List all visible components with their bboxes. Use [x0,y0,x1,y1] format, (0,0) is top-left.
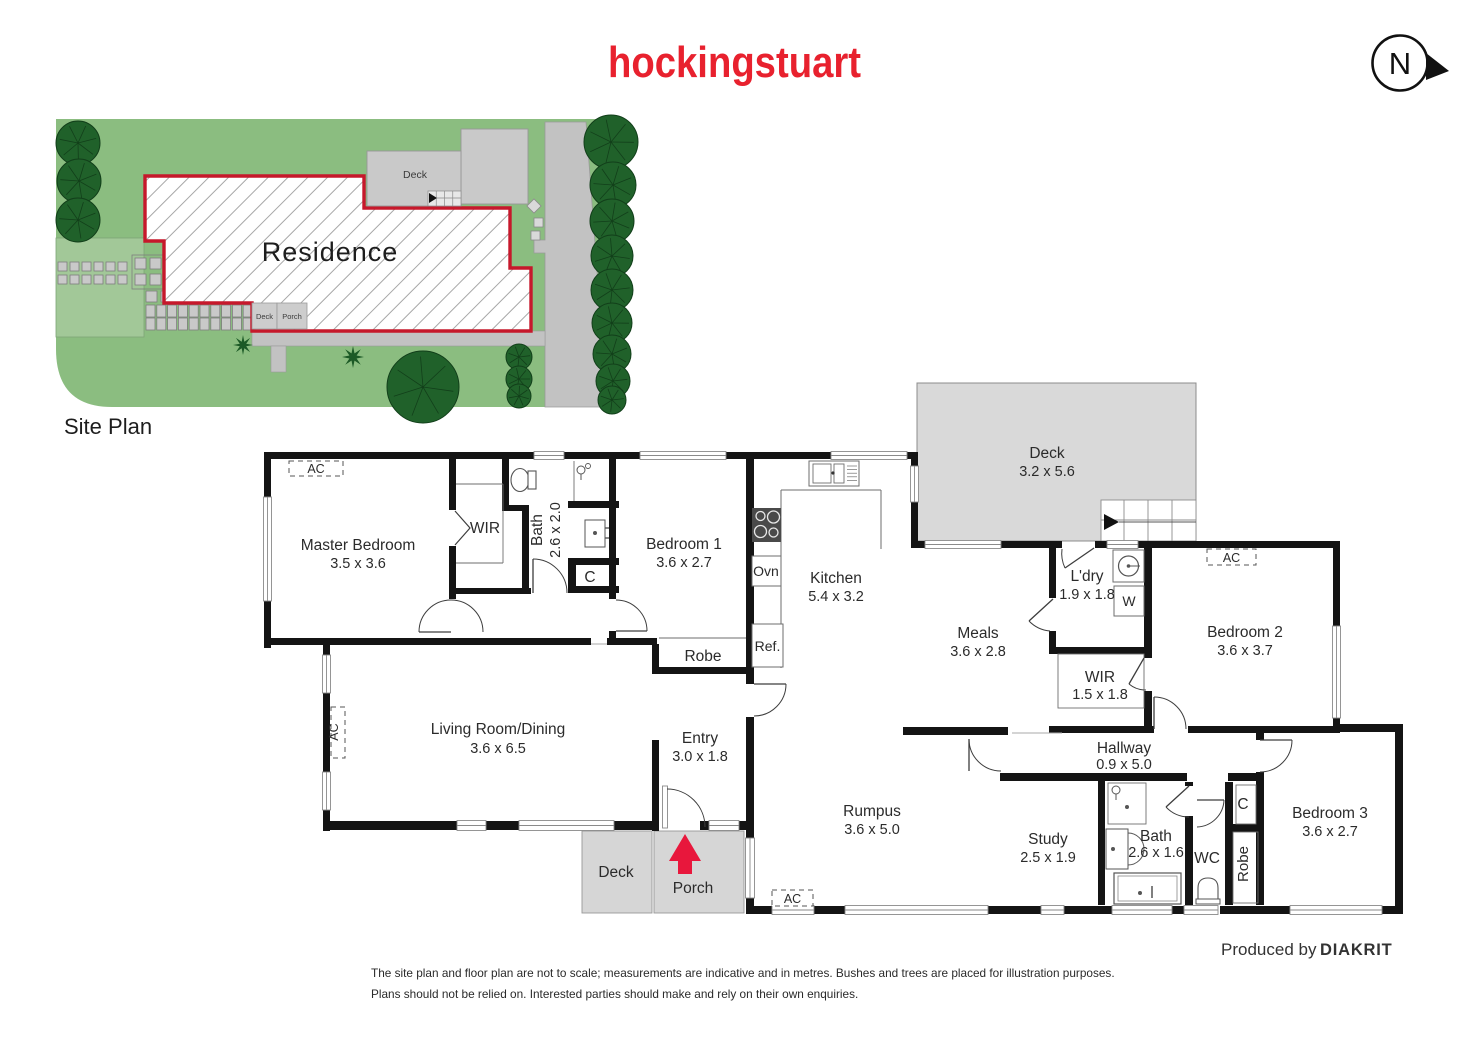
svg-text:Deck: Deck [1029,445,1065,462]
svg-text:3.6 x 5.0: 3.6 x 5.0 [844,822,900,838]
svg-text:Entry: Entry [682,730,718,747]
svg-text:hockingstuart: hockingstuart [608,38,861,87]
svg-text:C: C [1237,796,1248,813]
svg-text:Site Plan: Site Plan [64,414,152,439]
svg-text:Deck: Deck [403,169,428,181]
svg-text:Ovn: Ovn [753,563,779,579]
svg-text:5.4 x 3.2: 5.4 x 3.2 [808,589,864,605]
svg-text:Meals: Meals [957,625,999,642]
svg-text:2.6 x 2.0: 2.6 x 2.0 [548,502,564,558]
svg-text:Master Bedroom: Master Bedroom [301,537,416,554]
svg-text:2.6 x 1.6: 2.6 x 1.6 [1128,845,1184,861]
svg-text:Residence: Residence [262,237,399,267]
svg-text:AC: AC [784,892,801,906]
svg-text:3.6 x 3.7: 3.6 x 3.7 [1217,643,1273,659]
svg-text:AC: AC [307,462,324,476]
svg-text:Porch: Porch [282,312,302,321]
svg-text:Living Room/Dining: Living Room/Dining [431,721,565,738]
svg-text:W: W [1122,593,1136,609]
svg-text:Bath: Bath [1140,828,1172,845]
svg-text:3.5 x 3.6: 3.5 x 3.6 [330,556,386,572]
svg-text:Produced by: Produced by [1221,940,1317,959]
svg-text:3.0 x 1.8: 3.0 x 1.8 [672,749,728,765]
svg-text:Robe: Robe [1235,846,1252,882]
svg-text:0.9 x 5.0: 0.9 x 5.0 [1096,757,1152,773]
svg-text:The site plan and floor plan a: The site plan and floor plan are not to … [371,966,1115,980]
svg-text:Porch: Porch [673,880,714,897]
svg-text:3.6 x 2.7: 3.6 x 2.7 [656,555,712,571]
svg-text:WIR: WIR [1085,669,1115,686]
svg-text:DIAKRIT: DIAKRIT [1320,941,1393,959]
svg-text:Bedroom 3: Bedroom 3 [1292,805,1368,822]
svg-text:WIR: WIR [470,520,500,537]
svg-text:WC: WC [1194,850,1220,867]
svg-text:Bedroom 1: Bedroom 1 [646,536,722,553]
svg-text:3.6 x 2.8: 3.6 x 2.8 [950,644,1006,660]
svg-text:AC: AC [327,723,341,740]
svg-text:Robe: Robe [684,648,721,665]
svg-text:Bedroom 2: Bedroom 2 [1207,624,1283,641]
svg-text:1.9 x 1.8: 1.9 x 1.8 [1059,587,1115,603]
svg-text:Bath: Bath [529,514,546,546]
svg-text:Deck: Deck [256,312,273,321]
svg-text:C: C [584,569,595,586]
svg-text:Kitchen: Kitchen [810,570,862,587]
svg-text:2.5 x 1.9: 2.5 x 1.9 [1020,850,1076,866]
svg-text:N: N [1389,46,1411,81]
svg-text:1.5 x 1.8: 1.5 x 1.8 [1072,687,1128,703]
svg-text:Study: Study [1028,831,1068,848]
svg-text:Hallway: Hallway [1097,740,1152,757]
svg-text:Rumpus: Rumpus [843,803,901,820]
svg-text:Ref.: Ref. [755,638,781,654]
svg-text:3.2 x 5.6: 3.2 x 5.6 [1019,464,1075,480]
svg-text:L'dry: L'dry [1070,568,1103,585]
svg-text:3.6 x 2.7: 3.6 x 2.7 [1302,824,1358,840]
svg-text:3.6 x 6.5: 3.6 x 6.5 [470,741,526,757]
svg-text:Plans should not be relied on.: Plans should not be relied on. Intereste… [371,987,858,1001]
svg-text:Deck: Deck [598,864,634,881]
svg-text:AC: AC [1223,551,1240,565]
